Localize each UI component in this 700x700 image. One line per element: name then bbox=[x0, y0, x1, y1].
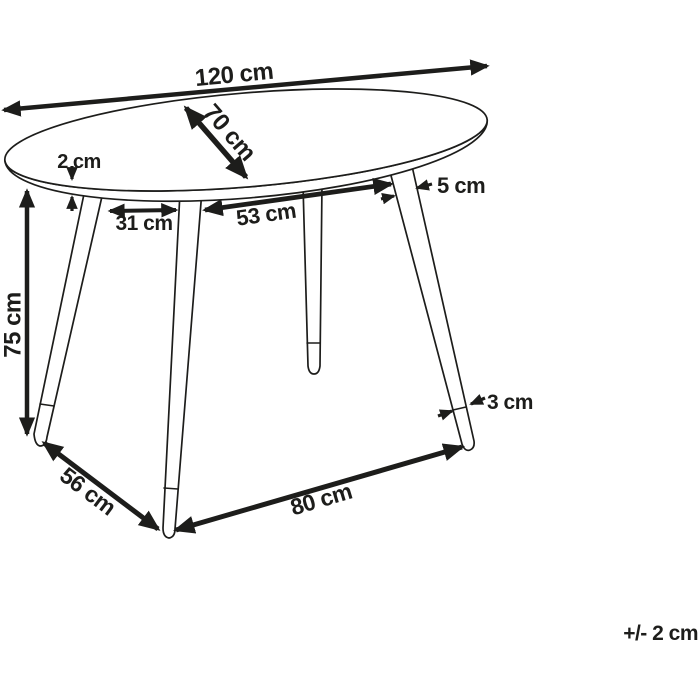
dimension-arrow-leg-width-bottom-left bbox=[438, 411, 452, 416]
dimension-label-feet-gap-left: 56 cm bbox=[55, 462, 121, 521]
dimension-label-height: 75 cm bbox=[0, 292, 26, 358]
table-leg-front-center bbox=[163, 190, 202, 538]
dimension-label-top-thickness: 2 cm bbox=[57, 151, 101, 173]
dimension-arrow-leg-inset bbox=[110, 210, 176, 211]
tolerance-note: +/- 2 cm bbox=[623, 622, 698, 645]
dimension-label-leg-width-top: 5 cm bbox=[437, 173, 485, 198]
leg-foot-cap-front-center bbox=[164, 488, 178, 489]
dimension-label-leg-inset: 31 cm bbox=[115, 212, 172, 235]
table-dimension-diagram: 120 cm 70 cm 2 cm 31 cm 53 cm 5 cm 75 cm… bbox=[0, 0, 700, 700]
dimension-label-feet-gap-front: 80 cm bbox=[287, 478, 355, 521]
dimension-arrow-leg-width-top-left bbox=[381, 196, 394, 199]
dimension-label-leg-width-bottom: 3 cm bbox=[487, 391, 533, 414]
table-leg-front-left bbox=[34, 192, 103, 446]
dimension-arrow-leg-width-top-right bbox=[417, 184, 432, 188]
table-leg-back bbox=[303, 184, 322, 374]
diagram-canvas: 120 cm 70 cm 2 cm 31 cm 53 cm 5 cm 75 cm… bbox=[0, 0, 700, 700]
dimension-arrow-leg-width-bottom-right bbox=[471, 398, 485, 404]
